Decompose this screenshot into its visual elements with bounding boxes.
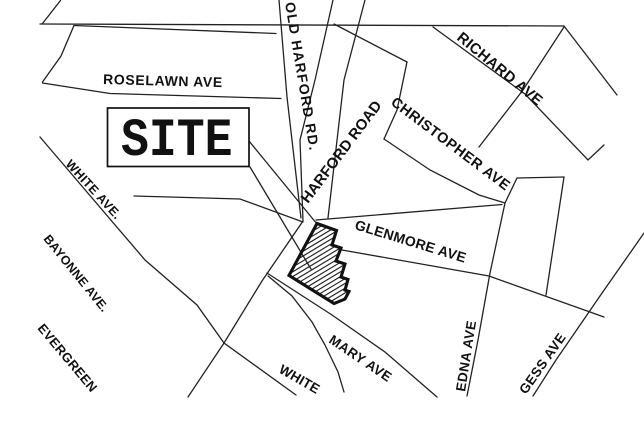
svg-text:ROSELAWN AVE: ROSELAWN AVE: [103, 71, 223, 90]
svg-text:SITE: SITE: [121, 111, 232, 172]
